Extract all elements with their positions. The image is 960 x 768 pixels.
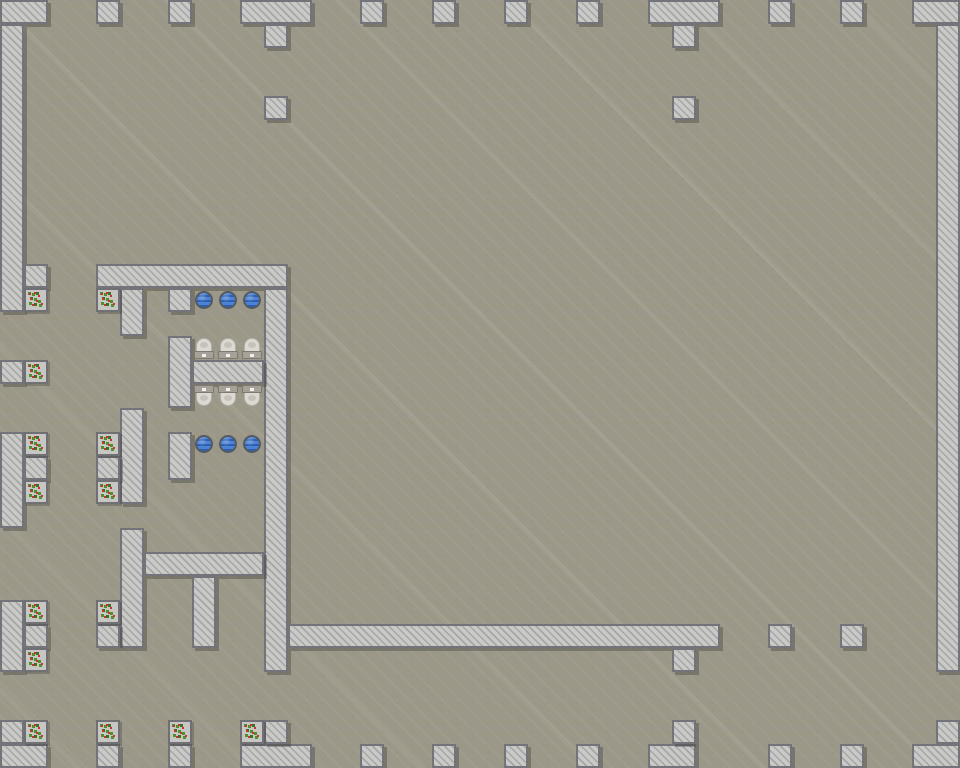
toilet-tank-icon [218, 351, 238, 359]
bush-berries-icon [101, 725, 103, 727]
toilet[interactable] [240, 384, 264, 408]
toilet-bowl-icon [220, 391, 236, 406]
toilet-flush-button-icon [250, 354, 254, 357]
wall-tile [0, 744, 48, 768]
bush-berries-icon [101, 437, 103, 439]
wall-tile [24, 264, 48, 288]
wall-tile [912, 0, 960, 24]
wall-tile [96, 456, 120, 480]
wall-tile [96, 624, 120, 648]
wall-tile [24, 624, 48, 648]
wall-tile [432, 744, 456, 768]
sink-basin-icon [195, 435, 213, 453]
wall-tile [840, 744, 864, 768]
toilet[interactable] [240, 336, 264, 360]
wall-tile [168, 744, 192, 768]
sink[interactable] [192, 432, 216, 456]
berry-bush[interactable] [96, 288, 120, 312]
bush-berries-icon [29, 653, 31, 655]
toilet-tank-icon [242, 385, 262, 393]
wall-tile [168, 336, 192, 408]
bush-berries-icon [101, 605, 103, 607]
berry-bush[interactable] [96, 480, 120, 504]
wall-tile [912, 744, 960, 768]
wall-tile [768, 624, 792, 648]
wall-tile [360, 0, 384, 24]
wall-tile [0, 600, 24, 672]
berry-bush[interactable] [240, 720, 264, 744]
wall-tile [0, 432, 24, 528]
sink[interactable] [216, 288, 240, 312]
bush-berries-icon [101, 293, 103, 295]
toilet-bowl-icon [196, 391, 212, 406]
wall-tile [120, 408, 144, 504]
bush-berries-icon [29, 605, 31, 607]
wall-tile [768, 0, 792, 24]
berry-bush[interactable] [24, 432, 48, 456]
wall-tile [120, 288, 144, 336]
toilet-flush-button-icon [202, 354, 206, 357]
wall-tile [504, 0, 528, 24]
sink-basin-icon [219, 291, 237, 309]
wall-tile [192, 576, 216, 648]
wall-tile [192, 360, 264, 384]
sink[interactable] [240, 288, 264, 312]
wall-tile [264, 96, 288, 120]
wall-tile [96, 264, 288, 288]
bush-berries-icon [29, 485, 31, 487]
bush-berries-icon [29, 293, 31, 295]
toilet[interactable] [192, 336, 216, 360]
sink[interactable] [216, 432, 240, 456]
wall-tile [264, 720, 288, 744]
toilet-flush-button-icon [226, 354, 230, 357]
wall-tile [672, 24, 696, 48]
wall-tile [768, 744, 792, 768]
toilet-flush-button-icon [202, 388, 206, 391]
bush-berries-icon [245, 725, 247, 727]
wall-tile [576, 0, 600, 24]
sink-basin-icon [243, 435, 261, 453]
wall-tile [0, 0, 48, 24]
toilet-tank-icon [218, 385, 238, 393]
berry-bush[interactable] [24, 288, 48, 312]
toilet-tank-icon [194, 351, 214, 359]
wall-tile [0, 24, 24, 312]
sink-basin-icon [219, 435, 237, 453]
wall-tile [240, 744, 312, 768]
bush-berries-icon [101, 485, 103, 487]
toilet-flush-button-icon [226, 388, 230, 391]
toilet-bowl-icon [244, 391, 260, 406]
berry-bush[interactable] [24, 720, 48, 744]
toilet-flush-button-icon [250, 388, 254, 391]
wall-tile [840, 624, 864, 648]
wall-tile [144, 552, 264, 576]
bush-berries-icon [29, 725, 31, 727]
sink-basin-icon [195, 291, 213, 309]
wall-tile [432, 0, 456, 24]
wall-tile [96, 0, 120, 24]
wall-tile [576, 744, 600, 768]
bush-berries-icon [29, 365, 31, 367]
wall-tile [648, 744, 696, 768]
berry-bush[interactable] [96, 432, 120, 456]
bush-berries-icon [29, 437, 31, 439]
toilet-tank-icon [194, 385, 214, 393]
wall-tile [264, 288, 288, 672]
wall-tile [120, 528, 144, 648]
wall-tile [168, 288, 192, 312]
wall-tile [240, 0, 312, 24]
wall-tile [672, 96, 696, 120]
berry-bush[interactable] [168, 720, 192, 744]
berry-bush[interactable] [24, 648, 48, 672]
toilet[interactable] [192, 384, 216, 408]
wall-tile [288, 624, 720, 648]
wall-tile [936, 720, 960, 744]
berry-bush[interactable] [96, 600, 120, 624]
wall-tile [24, 456, 48, 480]
berry-bush[interactable] [24, 480, 48, 504]
wall-tile [0, 720, 24, 744]
sink-basin-icon [243, 291, 261, 309]
berry-bush[interactable] [24, 360, 48, 384]
wall-tile [360, 744, 384, 768]
toilet[interactable] [216, 336, 240, 360]
wall-tile [648, 0, 720, 24]
wall-tile [0, 360, 24, 384]
sink[interactable] [240, 432, 264, 456]
wall-tile [672, 648, 696, 672]
toilet-tank-icon [242, 351, 262, 359]
wall-tile [168, 432, 192, 480]
bush-berries-icon [173, 725, 175, 727]
wall-tile [504, 744, 528, 768]
berry-bush[interactable] [24, 600, 48, 624]
berry-bush[interactable] [96, 720, 120, 744]
wall-tile [936, 24, 960, 672]
wall-tile [840, 0, 864, 24]
game-map[interactable] [0, 0, 960, 768]
wall-tile [168, 0, 192, 24]
wall-tile [672, 720, 696, 744]
wall-tile [96, 744, 120, 768]
toilet[interactable] [216, 384, 240, 408]
sink[interactable] [192, 288, 216, 312]
wall-tile [264, 24, 288, 48]
